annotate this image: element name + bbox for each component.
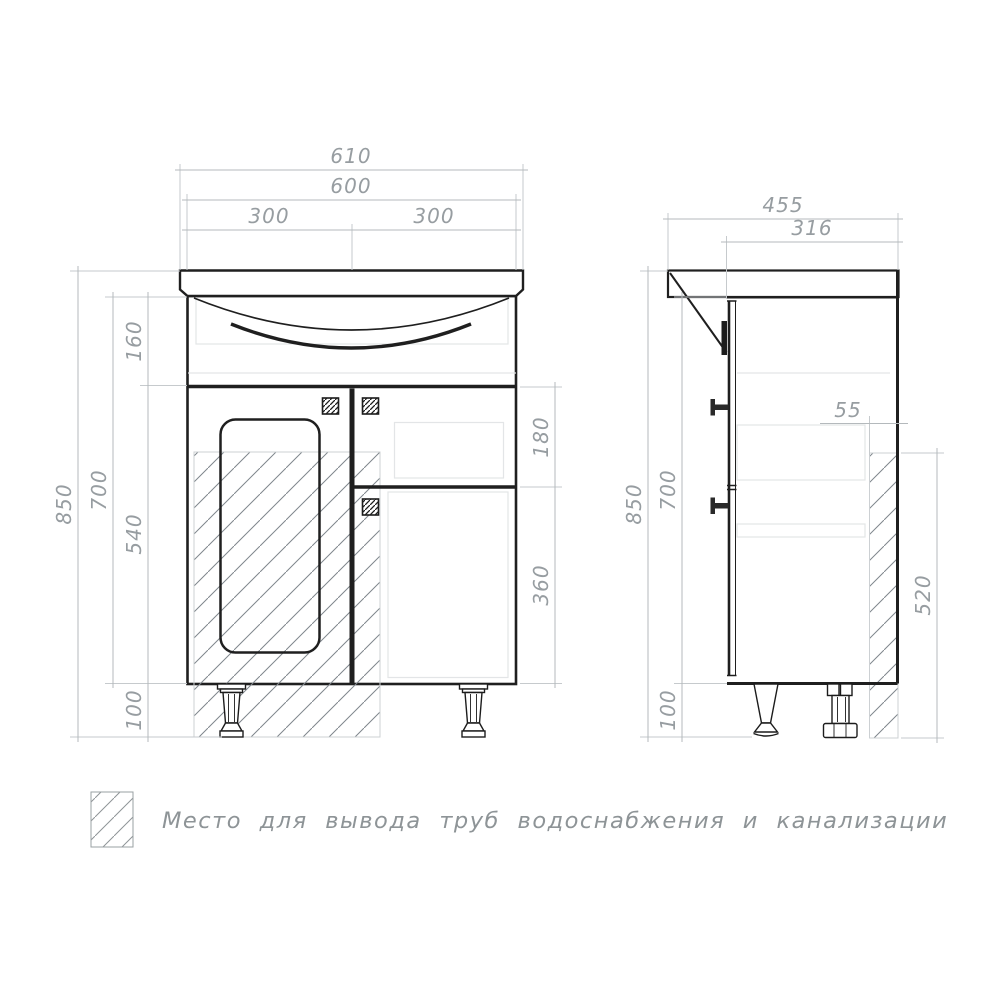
lower-door-handle xyxy=(363,499,379,515)
front-top-dimensions: 610 600 300 300 xyxy=(175,144,528,270)
left-door-handle xyxy=(323,398,339,414)
side-upper-handle xyxy=(711,399,729,416)
dim-front-sink-section: 160 xyxy=(122,320,146,361)
dim-drawer-height: 180 xyxy=(529,416,553,457)
dim-front-overall-height: 850 xyxy=(52,483,76,524)
drawer-handle xyxy=(363,398,379,414)
side-countertop xyxy=(668,271,899,298)
dim-front-left-half: 300 xyxy=(248,204,289,228)
side-left-dimensions: 850 700 100 xyxy=(622,266,752,742)
dim-front-overall-width: 610 xyxy=(330,144,371,168)
side-view xyxy=(668,271,899,739)
front-countertop xyxy=(180,271,523,297)
dim-front-cabinet-width: 600 xyxy=(330,174,371,198)
dim-front-body-height: 700 xyxy=(87,469,111,510)
dim-side-overall-depth: 455 xyxy=(762,193,803,217)
dim-side-overall-height: 850 xyxy=(622,483,646,524)
sink-apron-edge xyxy=(722,321,728,355)
dim-pipe-zone-height: 520 xyxy=(911,574,935,615)
side-door-profile xyxy=(727,301,737,676)
side-lower-handle xyxy=(711,498,729,515)
dim-front-legs-height: 100 xyxy=(122,689,146,730)
legend: Место для вывода труб водоснабжения и ка… xyxy=(91,792,948,847)
side-back-leg xyxy=(824,684,858,738)
front-right-dimensions: 180 360 xyxy=(520,382,562,688)
front-view xyxy=(180,271,523,738)
dim-side-body-height: 700 xyxy=(656,469,680,510)
side-shelf-outline xyxy=(737,524,865,537)
side-drawer-box-outline xyxy=(737,425,865,480)
front-right-leg xyxy=(460,684,488,737)
legend-text: Место для вывода труб водоснабжения и ка… xyxy=(162,808,948,834)
legend-hatch-swatch xyxy=(91,792,133,847)
vanity-drawing-svg: 610 600 300 300 850 700 160 540 100 180 … xyxy=(0,0,1000,1000)
dim-side-cabinet-depth: 316 xyxy=(791,216,832,240)
side-pipe-zone-hatch xyxy=(870,453,899,738)
dim-front-door-section: 540 xyxy=(122,513,146,554)
dim-front-right-half: 300 xyxy=(413,204,454,228)
dim-side-legs-height: 100 xyxy=(656,689,680,730)
dim-pipe-zone-width: 55 xyxy=(834,398,861,422)
technical-drawing-page: 610 600 300 300 850 700 160 540 100 180 … xyxy=(0,0,1000,1000)
dim-lower-door-height: 360 xyxy=(529,564,553,605)
side-front-leg xyxy=(754,684,779,736)
